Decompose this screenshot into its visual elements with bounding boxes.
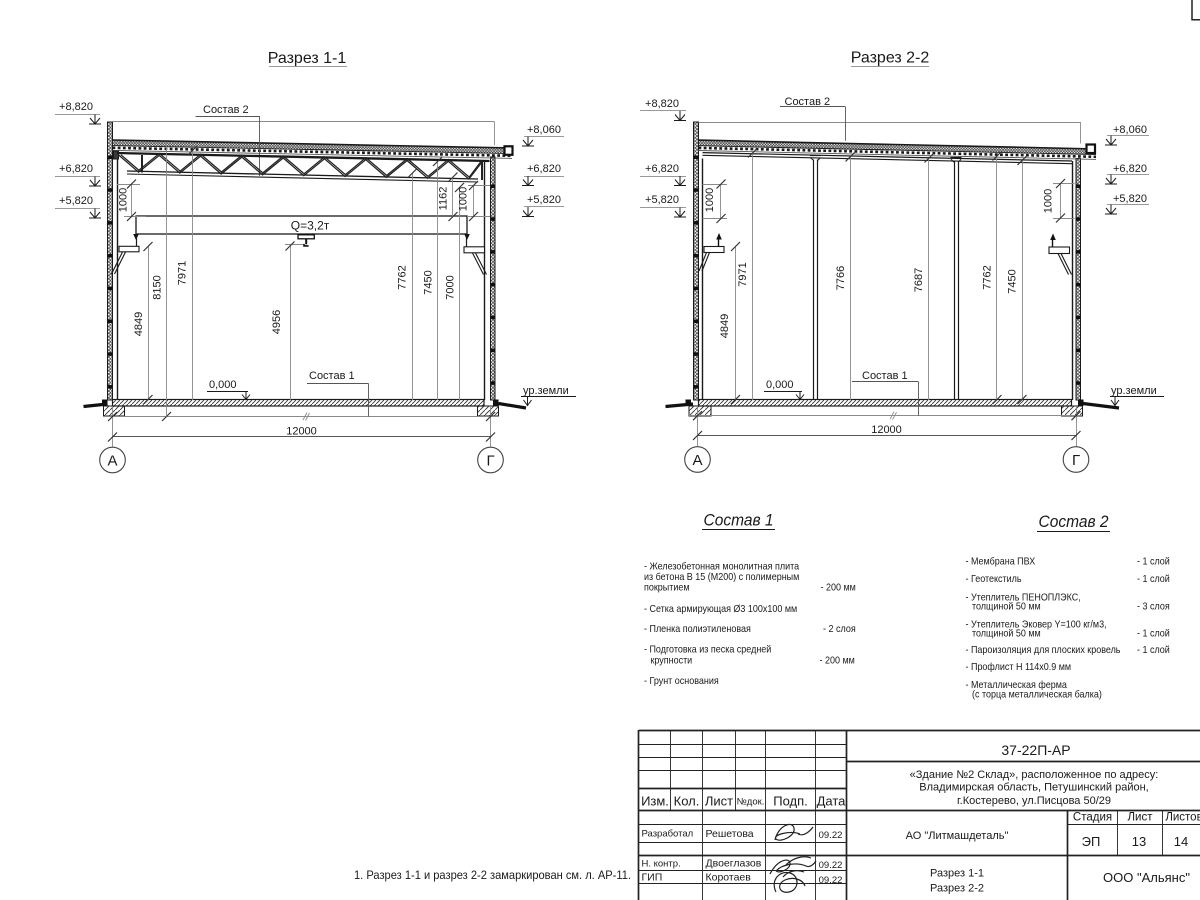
- svg-text:- 1 слой: - 1 слой: [1137, 573, 1170, 585]
- svg-text:толщиной 50 мм: толщиной 50 мм: [972, 601, 1041, 613]
- svg-text:Состав 1: Состав 1: [704, 511, 774, 530]
- svg-text:+5,820: +5,820: [1113, 193, 1147, 205]
- svg-text:09.22: 09.22: [819, 860, 843, 871]
- svg-text:13: 13: [1132, 834, 1146, 849]
- svg-text:- Грунт основания: - Грунт основания: [644, 675, 719, 687]
- svg-text:+6,820: +6,820: [527, 163, 561, 175]
- svg-text:+8,820: +8,820: [59, 101, 93, 113]
- svg-text:- 200 мм: - 200 мм: [821, 582, 856, 594]
- svg-text:Разработал: Разработал: [642, 829, 694, 840]
- svg-text:Г: Г: [486, 453, 494, 470]
- svg-text:0,000: 0,000: [766, 379, 794, 391]
- svg-text:Состав 2: Состав 2: [203, 104, 249, 116]
- svg-text:8150: 8150: [152, 275, 164, 299]
- svg-text:+5,820: +5,820: [527, 194, 561, 206]
- svg-text:№док.: №док.: [737, 797, 765, 808]
- svg-text:ЭП: ЭП: [1082, 834, 1101, 849]
- svg-text:Состав 1: Состав 1: [309, 370, 355, 382]
- svg-text:12000: 12000: [871, 424, 902, 436]
- svg-text:(с торца металлическая балка): (с торца металлическая балка): [972, 689, 1102, 701]
- svg-text:- 3 слоя: - 3 слоя: [1137, 601, 1170, 613]
- svg-text:0,000: 0,000: [209, 379, 237, 391]
- svg-text:Лист: Лист: [705, 794, 733, 809]
- svg-text:1000: 1000: [1043, 189, 1055, 213]
- svg-text:- Пароизоляция для плоских кро: - Пароизоляция для плоских кровель: [966, 644, 1121, 656]
- svg-text:Решетова: Решетова: [706, 828, 754, 840]
- svg-text:толщиной 50 мм: толщиной 50 мм: [972, 628, 1041, 640]
- svg-text:4849: 4849: [719, 314, 731, 338]
- svg-text:ООО "Альянс": ООО "Альянс": [1103, 870, 1190, 885]
- svg-text:09.22: 09.22: [819, 830, 843, 841]
- svg-text:Разрез 1-1: Разрез 1-1: [268, 50, 347, 67]
- svg-text:- 1 слой: - 1 слой: [1137, 628, 1170, 640]
- svg-text:1000: 1000: [118, 188, 130, 212]
- svg-text:- 1 слой: - 1 слой: [1137, 644, 1170, 656]
- svg-text:7766: 7766: [835, 266, 847, 290]
- svg-text:Разрез 2-2: Разрез 2-2: [930, 883, 984, 895]
- svg-text:- 200 мм: - 200 мм: [820, 655, 855, 667]
- svg-text:Разрез 2-2: Разрез 2-2: [851, 50, 930, 67]
- svg-text:Состав 1: Состав 1: [862, 370, 908, 382]
- svg-text:Q=3,2т: Q=3,2т: [291, 219, 330, 233]
- svg-text:Стадия: Стадия: [1073, 812, 1112, 824]
- svg-text:ур.земли: ур.земли: [523, 385, 569, 397]
- svg-text:09.22: 09.22: [819, 875, 843, 886]
- svg-text:+6,820: +6,820: [59, 163, 93, 175]
- svg-text:+8,060: +8,060: [1113, 124, 1147, 136]
- svg-text:- Геотекстиль: - Геотекстиль: [966, 573, 1023, 585]
- svg-text:Двоеглазов: Двоеглазов: [706, 858, 762, 870]
- svg-text:+5,820: +5,820: [645, 194, 679, 206]
- svg-text:12000: 12000: [286, 426, 317, 438]
- svg-text:Состав 2: Состав 2: [1039, 512, 1109, 531]
- svg-text:7762: 7762: [397, 265, 409, 289]
- svg-text:7762: 7762: [982, 265, 994, 289]
- svg-text:Г: Г: [1072, 452, 1080, 469]
- svg-text:4849: 4849: [133, 312, 145, 336]
- svg-text:А: А: [692, 452, 702, 469]
- svg-text:«Здание №2 Склад», расположенн: «Здание №2 Склад», расположенное по адре…: [910, 769, 1159, 781]
- svg-text:7450: 7450: [423, 270, 435, 294]
- svg-text:7687: 7687: [913, 268, 925, 292]
- svg-text:14: 14: [1174, 834, 1188, 849]
- svg-text:+6,820: +6,820: [645, 163, 679, 175]
- svg-text:Изм.: Изм.: [641, 794, 669, 809]
- svg-text:ГИП: ГИП: [642, 872, 663, 884]
- svg-text:- 1 слой: - 1 слой: [1137, 556, 1170, 568]
- svg-text:Дата: Дата: [817, 794, 847, 809]
- svg-text:37-22П-АР: 37-22П-АР: [1001, 742, 1070, 758]
- svg-text:Листов: Листов: [1165, 812, 1200, 824]
- svg-text:Подп.: Подп.: [773, 794, 808, 809]
- svg-text:1162: 1162: [438, 187, 450, 211]
- svg-text:Лист: Лист: [1128, 812, 1154, 824]
- svg-text:7450: 7450: [1007, 269, 1019, 293]
- svg-text:+8,060: +8,060: [527, 124, 561, 136]
- svg-text:1. Разрез 1-1 и разрез 2-2 зам: 1. Разрез 1-1 и разрез 2-2 замаркирован …: [354, 868, 631, 882]
- svg-text:А: А: [107, 453, 117, 470]
- svg-text:- 2 слоя: - 2 слоя: [823, 623, 856, 635]
- svg-text:- Пленка полиэтиленовая: - Пленка полиэтиленовая: [644, 623, 751, 635]
- svg-text:+8,820: +8,820: [645, 98, 679, 110]
- svg-text:крупности: крупности: [651, 655, 693, 667]
- svg-text:7000: 7000: [445, 275, 457, 299]
- svg-text:+5,820: +5,820: [59, 195, 93, 207]
- svg-text:7971: 7971: [737, 262, 749, 286]
- svg-text:1000: 1000: [458, 187, 470, 211]
- svg-text:- Сетка армирующая Ø3 100х100: - Сетка армирующая Ø3 100х100 мм: [644, 603, 797, 615]
- svg-text:- Профлист Н 114х0.9 мм: - Профлист Н 114х0.9 мм: [966, 661, 1072, 673]
- svg-text:покрытием: покрытием: [644, 582, 690, 594]
- svg-text:7971: 7971: [177, 261, 189, 285]
- svg-text:г.Костерево, ул.Писцова 50/29: г.Костерево, ул.Писцова 50/29: [957, 795, 1111, 807]
- svg-text:Н. контр.: Н. контр.: [642, 859, 681, 870]
- svg-text:Владимирская область, Петушинс: Владимирская область, Петушинский район,: [919, 782, 1148, 794]
- svg-text:+6,820: +6,820: [1113, 163, 1147, 175]
- svg-text:Коротаев: Коротаев: [706, 872, 752, 884]
- svg-text:Разрез 1-1: Разрез 1-1: [930, 868, 984, 880]
- svg-text:АО "Литмашдеталь": АО "Литмашдеталь": [906, 830, 1009, 842]
- svg-text:- Мембрана ПВХ: - Мембрана ПВХ: [966, 556, 1036, 568]
- svg-text:ур.земли: ур.земли: [1111, 385, 1157, 397]
- svg-text:4956: 4956: [271, 310, 283, 334]
- svg-text:1000: 1000: [704, 188, 716, 212]
- svg-text:Кол.: Кол.: [674, 794, 700, 809]
